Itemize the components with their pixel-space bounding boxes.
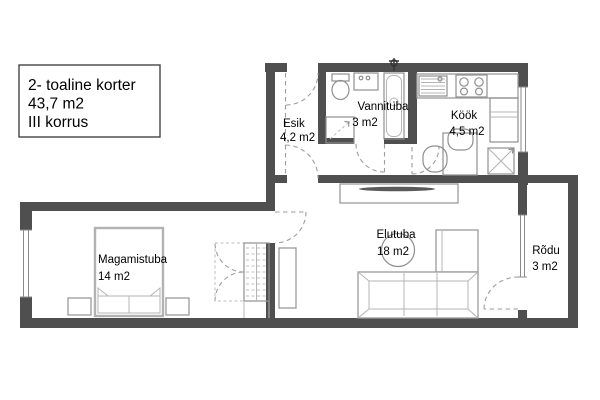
bathroom-door-swing: [356, 144, 385, 172]
bedroom-door-swing: [275, 212, 306, 243]
bathroom-sink: [354, 73, 378, 90]
wardrobe: [215, 243, 269, 318]
armchair: [436, 230, 478, 272]
toilet: [332, 74, 349, 100]
kitchen-window-glass: [518, 87, 528, 152]
wall-stub-hallway: [275, 175, 287, 183]
kitchen-fixtures: [417, 74, 518, 175]
info-box: 2- toaline korter 43,7 m2 III korrus: [19, 65, 160, 137]
wall-balcony-right: [568, 175, 578, 328]
wall-hallway-left: [266, 63, 275, 211]
wall-bathroom-left: [318, 72, 326, 138]
wall-balcony-partition-top: [518, 183, 527, 215]
balcony-window: [518, 215, 527, 277]
label-vannituba-name: Vannituba: [358, 101, 410, 113]
wall-bottom: [20, 318, 578, 328]
wall-left-top: [20, 202, 32, 230]
label-kook-area: 4,5 m2: [449, 126, 484, 138]
kitchen-window: [518, 87, 528, 152]
label-elutuba-name: Elutuba: [376, 229, 416, 241]
info-box-line2: 43,7 m2: [28, 96, 84, 113]
bedroom-window: [20, 230, 32, 297]
sofa: [358, 272, 478, 318]
floor-plan: 2- toaline korter 43,7 m2 III korrus Esi…: [0, 0, 600, 400]
info-box-line1: 2- toaline korter: [28, 77, 136, 94]
nightstand-left: [68, 298, 91, 315]
balcony-window-glass: [518, 215, 527, 277]
label-magamistuba-name: Magamistuba: [98, 254, 168, 266]
label-esik-name: Esik: [283, 118, 305, 130]
kitchen-corner-cabinet: [488, 148, 514, 174]
sideboard: [340, 184, 458, 203]
label-esik-area: 4,2 m2: [280, 132, 315, 144]
wall-kitchen-right-top: [518, 63, 528, 87]
wall-bathroom-kitchen: [408, 72, 417, 144]
bedroom-window-glass: [20, 230, 32, 297]
balcony-door-swing: [484, 277, 518, 309]
floor-plan-canvas: 2- toaline korter 43,7 m2 III korrus Esi…: [0, 0, 600, 400]
label-rodu-name: Rõdu: [532, 245, 560, 257]
wardrobe-door-swings: [215, 243, 244, 301]
info-box-line3: III korrus: [28, 114, 89, 131]
wall-bedroom-livingroom: [266, 243, 275, 323]
kitchen-sink: [419, 76, 447, 96]
kitchen-door-swing: [412, 147, 439, 174]
wall-bedroom-top: [20, 202, 275, 211]
label-rodu-area: 3 m2: [532, 261, 558, 273]
hallway-livingroom-door-swing: [286, 145, 319, 178]
label-kook-name: Köök: [451, 110, 477, 122]
sideboard-item: [359, 187, 435, 192]
wall-middle-horizontal: [318, 175, 578, 183]
label-magamistuba-area: 14 m2: [98, 271, 130, 283]
nightstand-right: [166, 298, 189, 315]
label-vannituba-area: 3 m2: [352, 117, 378, 129]
entrance-door-swing: [286, 73, 318, 105]
wall-top: [318, 63, 528, 72]
label-elutuba-area: 18 m2: [377, 246, 409, 258]
kitchen-cabinet-right: [490, 98, 518, 142]
livingroom-shelf: [279, 248, 296, 308]
